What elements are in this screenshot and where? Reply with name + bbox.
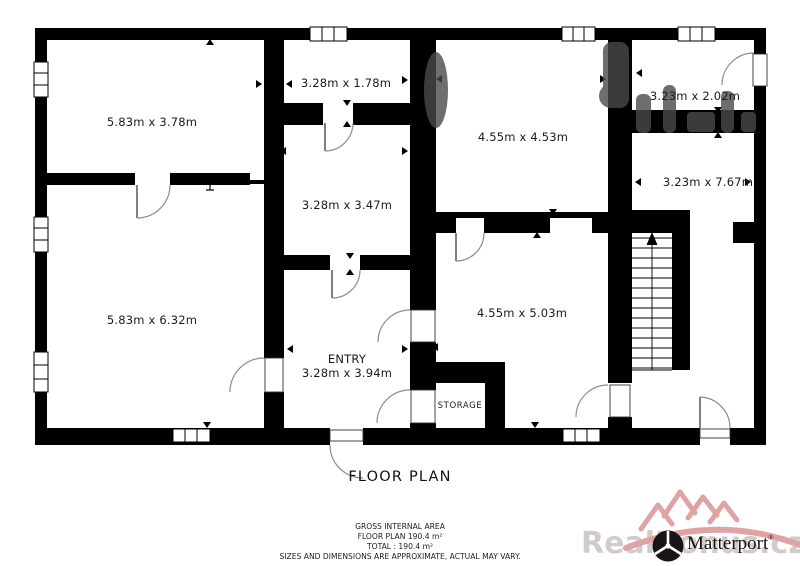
stairs-up-arrow-icon (647, 232, 658, 245)
room-label-entry: ENTRY 3.28m x 3.94m (302, 352, 392, 380)
footer-disclaimer: SIZES AND DIMENSIONS ARE APPROXIMATE, AC… (200, 552, 600, 562)
registered-mark: ® (768, 534, 773, 542)
footer-notes: GROSS INTERNAL AREA FLOOR PLAN 190.4 m² … (200, 522, 600, 562)
staircase (632, 232, 672, 370)
footer-total-area: TOTAL : 190.4 m² (200, 542, 600, 552)
room-label-top-right: 3.23m x 2.02m (650, 89, 740, 103)
doors (137, 53, 767, 478)
matterport-wordmark: Matterport® (687, 533, 774, 555)
room-label-bottom-left: 5.83m x 6.32m (107, 313, 197, 327)
room-label-bottom-center: 4.55m x 5.03m (477, 306, 567, 320)
room-label-top-left: 5.83m x 3.78m (107, 115, 197, 129)
entry-dims: 3.28m x 3.94m (302, 366, 392, 380)
entry-name: ENTRY (302, 352, 392, 366)
footer-gross-internal-area: GROSS INTERNAL AREA (200, 522, 600, 532)
plan-title: FLOOR PLAN (300, 469, 500, 485)
room-label-right-hall: 3.23m x 7.67m (663, 175, 753, 189)
floor-plan-canvas: RealBonus.cz (0, 0, 800, 566)
footer-floor-plan-area: FLOOR PLAN 190.4 m² (200, 532, 600, 542)
gray-watermark-shapes (424, 42, 756, 133)
room-label-middle: 3.28m x 3.47m (302, 198, 392, 212)
matterport-name: Matterport (687, 533, 768, 554)
room-label-storage: STORAGE (438, 401, 483, 411)
room-label-top-middle: 3.28m x 1.78m (301, 76, 391, 90)
room-label-center: 4.55m x 4.53m (478, 130, 568, 144)
